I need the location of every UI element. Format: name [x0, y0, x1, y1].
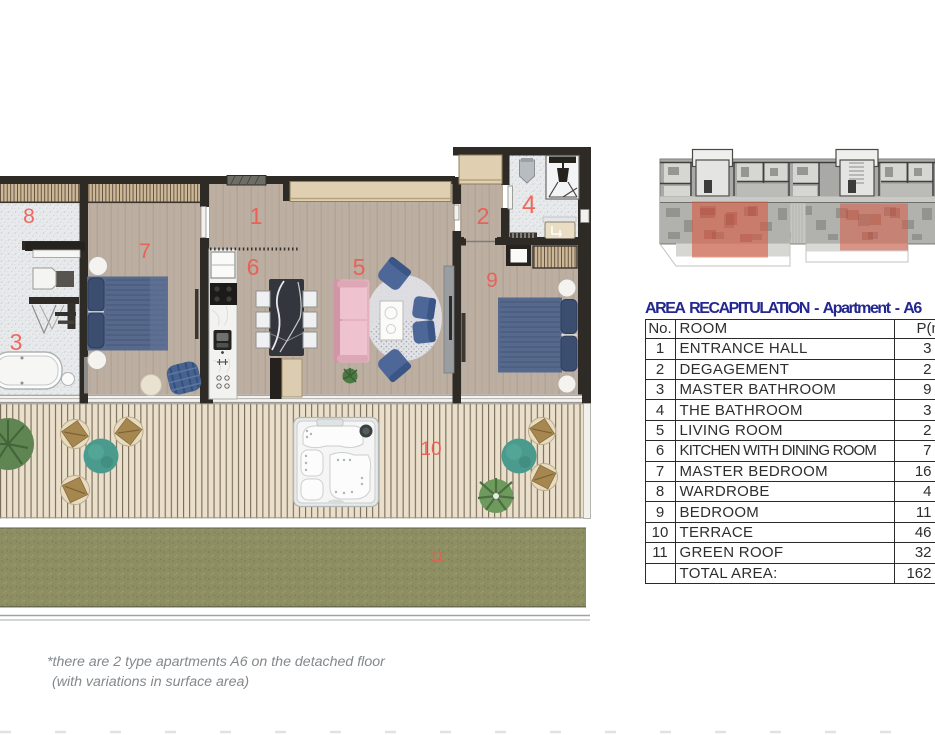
svg-text:4: 4 — [522, 191, 536, 219]
svg-text:3: 3 — [10, 329, 23, 355]
svg-text:5: 5 — [353, 254, 366, 280]
svg-text:10: 10 — [420, 439, 441, 460]
svg-text:9: 9 — [486, 269, 498, 292]
svg-text:2: 2 — [477, 203, 490, 229]
svg-text:1: 1 — [250, 203, 263, 229]
svg-text:11: 11 — [430, 548, 445, 564]
svg-text:8: 8 — [23, 205, 35, 228]
svg-text:6: 6 — [247, 254, 260, 280]
svg-text:7: 7 — [139, 240, 151, 263]
